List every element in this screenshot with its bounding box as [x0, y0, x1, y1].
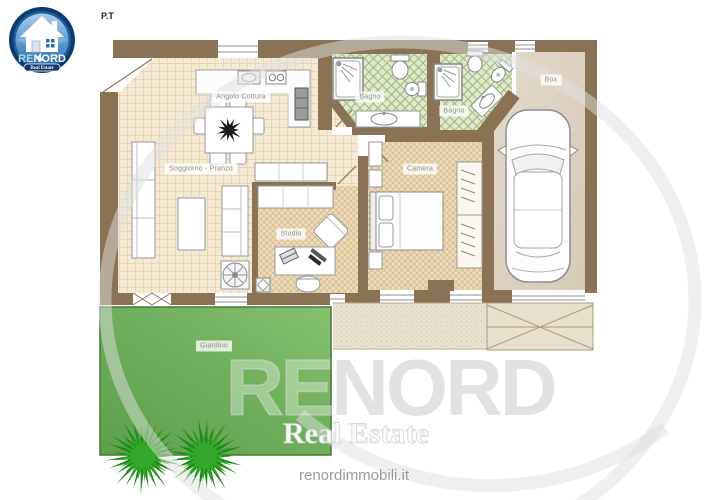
- bidet-symbol-1: [405, 82, 426, 96]
- nightstand-2: [369, 252, 382, 269]
- sideboard: [255, 163, 327, 181]
- room-label-living: Soggiorno - Pranzo: [165, 164, 237, 175]
- window-bottom-living: [215, 293, 247, 305]
- window-bedroom-1: [380, 291, 414, 302]
- nightstand-1: [369, 170, 382, 187]
- room-label-studio: Studio: [276, 229, 305, 240]
- small-planter: [256, 278, 270, 292]
- garage-door: [512, 292, 585, 303]
- logo-wordmark: RENORD: [18, 53, 66, 65]
- patio: [333, 303, 487, 349]
- sink-symbol-1: [356, 111, 420, 127]
- website-url: renordimmobili.it: [299, 467, 409, 484]
- paved-driveway: [487, 303, 593, 350]
- garden-lawn: [100, 307, 331, 455]
- desk: [275, 247, 335, 275]
- floor-level-label: P.T: [101, 11, 114, 21]
- french-door: [133, 293, 171, 305]
- room-label-bathroom2: Bagno: [439, 106, 468, 117]
- wardrobe: [457, 162, 482, 268]
- room-label-bedroom: Camera: [403, 164, 437, 175]
- shower-symbol-2: [434, 64, 462, 100]
- window-top-garage: [515, 41, 535, 52]
- floor-plan-canvas: [0, 0, 707, 500]
- car: [498, 110, 578, 282]
- room-label-kitchen: Angolo Cottura: [212, 92, 270, 103]
- toilet-symbol-1: [391, 55, 409, 79]
- studio-daybed: [258, 186, 333, 208]
- window-bedroom-2: [450, 291, 482, 302]
- potted-plant: [221, 261, 249, 289]
- room-label-garage: Box: [541, 75, 562, 86]
- window-top-living: [218, 42, 258, 56]
- fridge-symbol: [295, 88, 308, 120]
- coffee-table: [178, 198, 205, 250]
- logo-tagline: Real Estate: [30, 66, 53, 71]
- renord-logo: RENORD Real Estate: [8, 6, 76, 74]
- office-chair: [296, 276, 320, 292]
- driveway: [333, 303, 593, 350]
- dresser: [369, 142, 382, 166]
- double-bed: [370, 192, 443, 250]
- room-label-garden: Giardino: [196, 341, 232, 352]
- room-label-bathroom1: Bagno: [355, 92, 384, 103]
- sofa-center: [222, 186, 248, 256]
